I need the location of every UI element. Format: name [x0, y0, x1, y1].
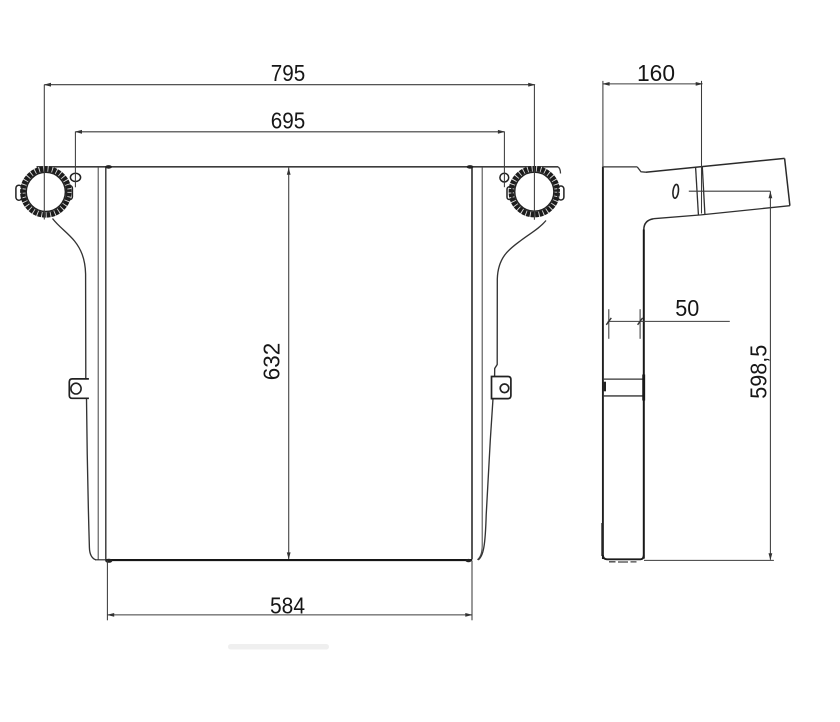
svg-text:598,5: 598,5 — [746, 345, 772, 399]
svg-text:795: 795 — [271, 60, 306, 86]
svg-text:160: 160 — [637, 60, 675, 86]
svg-text:50: 50 — [675, 295, 699, 321]
svg-text:695: 695 — [271, 108, 306, 134]
svg-text:632: 632 — [259, 343, 285, 381]
svg-text:584: 584 — [270, 592, 305, 618]
